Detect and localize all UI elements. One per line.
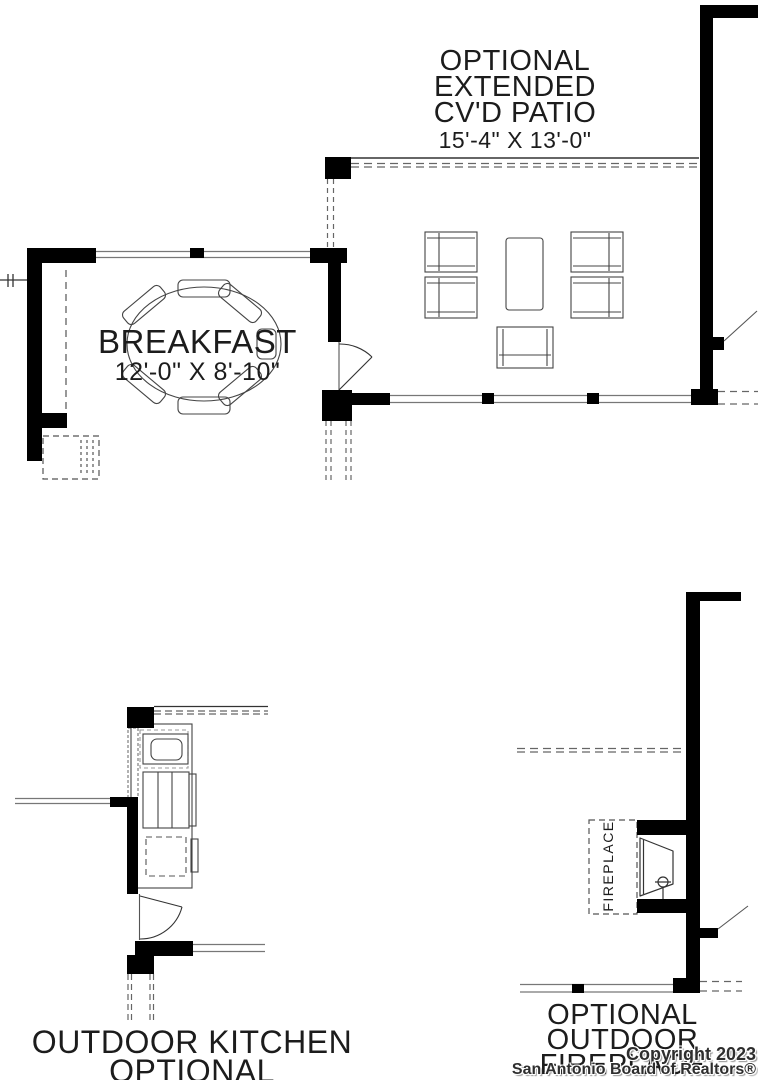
firebox-wall-top [637,820,686,835]
fireplace-roof-dashed [517,749,686,753]
coffee-table [506,238,543,310]
kitchen-left-line [15,799,110,804]
patio-sill-mullion-1 [482,393,494,404]
door-swing-arc [339,344,372,357]
kitchen-wall-hatch [128,728,138,798]
patio-column [325,157,351,179]
fireplace-wall-tab [700,928,718,938]
patio-title: OPTIONAL EXTENDED CV'D PATIO [372,48,658,126]
patio-dimensions: 15'-4" X 13'-0" [372,129,658,152]
armchair-top-left [425,232,477,272]
sink-basin [151,739,182,760]
kitchen-roof-dashed [154,711,268,714]
wall-right-foot [691,389,718,405]
kitchen-door [140,894,183,940]
fireplace-wall-vertical [686,592,700,984]
kitchen-bottom-line [193,945,265,952]
door-leaf [339,357,372,390]
optional-appliance-dashed [146,837,186,876]
armchair-bottom-center [497,327,553,368]
breakfast-corner-block [322,390,352,421]
wall-right-vertical [700,5,713,390]
breakfast-top-wall-left [33,248,96,263]
leader-line-fireplace [718,906,748,929]
wall-right-tab [711,337,724,350]
fireplace-sill-mullion [572,984,584,993]
floor-plan-page: OPTIONAL EXTENDED CV'D PATIO 15'-4" X 13… [0,0,758,1080]
patio-sill-wall-stub [352,393,390,405]
patio-optional-wall-dashed [328,179,334,251]
breakfast-room-name: BREAKFAST [55,325,340,358]
optional-cabinet-dashed [43,436,99,479]
grill [143,772,189,828]
chair-upper-left [120,283,167,326]
patio-cut-dashes [718,392,758,405]
patio-title-line3: CV'D PATIO [372,100,658,126]
breakfast-dimensions: 12'-0" X 8'-10" [55,360,340,385]
kitchen-bottom-column [127,955,154,974]
walls [27,5,758,993]
outdoor-kitchen-label-line2: OPTIONAL [8,1055,376,1080]
fireplace-sill [520,985,673,993]
patio-sill-mullion-2 [587,393,599,404]
chair-upper-right [216,281,263,324]
kitchen-bottom-wall [135,941,193,956]
breakfast-left-wall [27,248,42,461]
breakfast-wall-stub [42,413,67,428]
door-leaf [140,896,182,907]
hose-bib-icon [0,274,27,287]
kitchen-cut-dashes [128,974,154,1022]
kitchen-top-column [127,707,154,728]
kitchen-wall-vertical [127,807,138,894]
fireplace-fixture-label: FIREPLACE [600,820,616,911]
fireplace-wall-foot [673,978,700,993]
copyright-watermark-line2: San Antonio Board of Realtors® [512,1061,756,1079]
armchair-bottom-left [425,277,477,318]
fireplace-cut-dashes [700,982,742,992]
firebox-wall-bottom [637,899,686,913]
patio-sill [390,396,692,403]
breakfast-patio-door [339,342,372,390]
kitchen-wall-horizontal [110,797,138,807]
outdoor-kitchen [128,724,198,940]
wall-continuation-dashed [326,421,351,480]
patio-furniture [425,232,623,368]
dashed-lines [66,158,758,1022]
firebox [640,838,673,899]
kitchen-counter [131,724,198,888]
floor-plan-drawing [0,0,758,1080]
breakfast-window-mullion [190,248,204,258]
patio-roof-dashed [351,164,699,168]
armchair-top-right [571,232,623,272]
armchair-bottom-right [571,277,623,318]
leader-line-patio [724,311,757,341]
door-swing-arc [140,907,182,939]
